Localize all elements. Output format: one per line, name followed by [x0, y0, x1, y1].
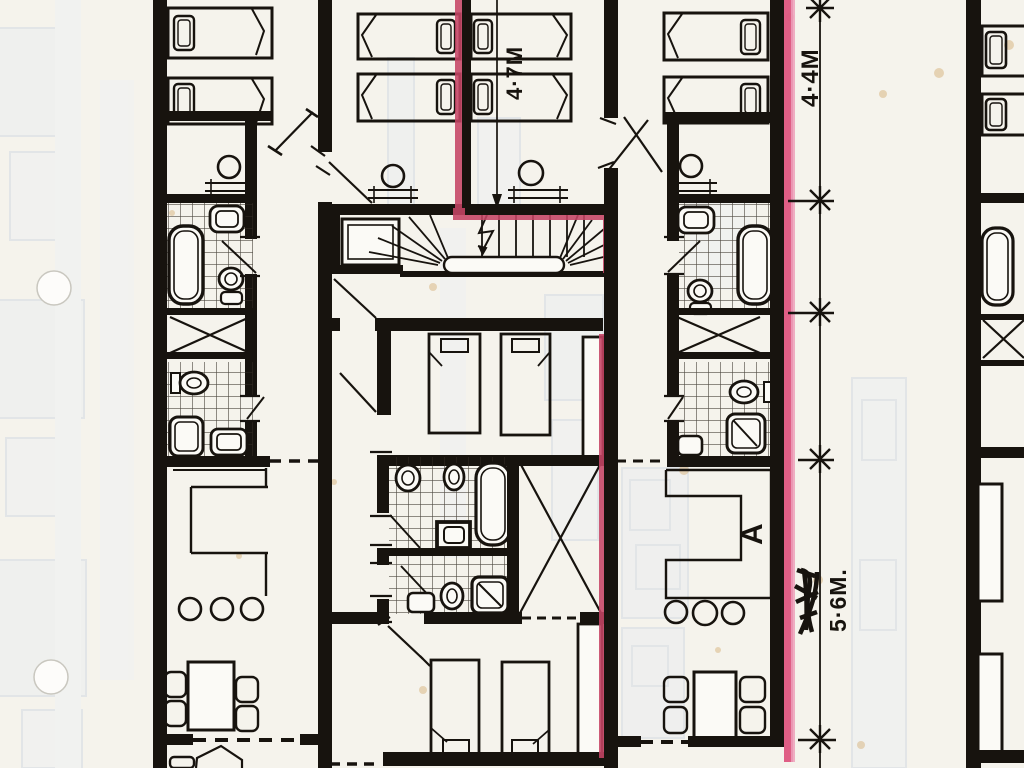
svg-text:4·7M: 4·7M — [502, 46, 527, 100]
svg-text:5·6M.: 5·6M. — [825, 568, 851, 632]
svg-text:4·4M: 4·4M — [797, 48, 824, 107]
svg-text:A: A — [736, 523, 769, 545]
